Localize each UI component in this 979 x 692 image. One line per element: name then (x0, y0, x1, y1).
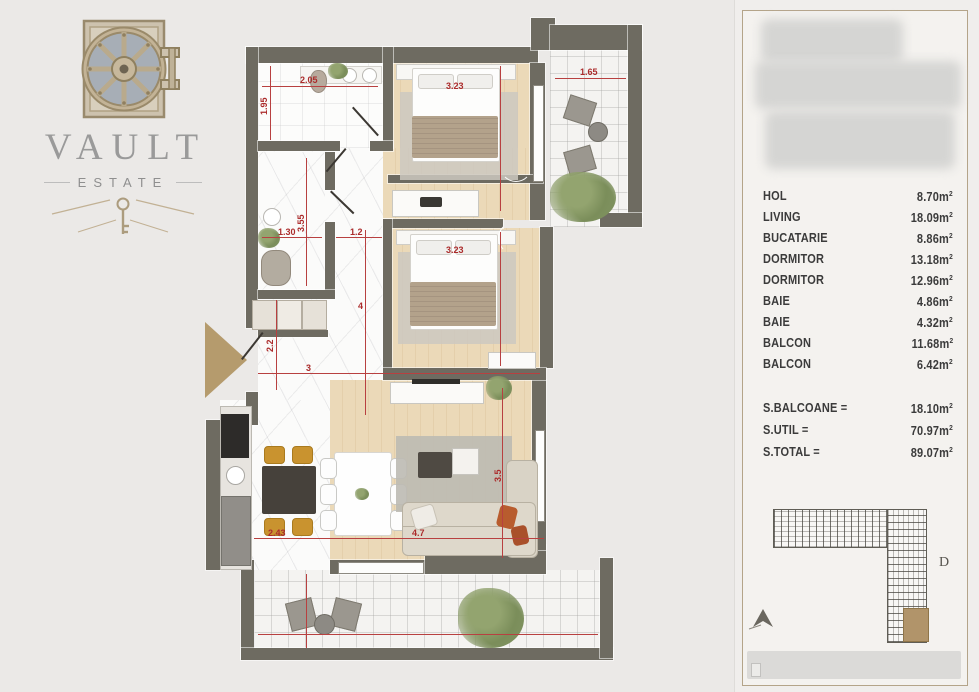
dim-bath2-height: 3.55 (297, 214, 306, 232)
white-chair-1 (320, 458, 337, 479)
keyplan-unit-highlight (903, 608, 929, 642)
wall-bed2-top (383, 219, 503, 228)
wall-kitchen-left (206, 420, 220, 570)
white-chair-2 (320, 484, 337, 505)
room-name: BAIE (763, 315, 790, 330)
wall-bath1-bottom-left (258, 141, 340, 151)
blurred-header-line-1 (761, 19, 903, 63)
coffee-table-white (452, 448, 479, 475)
wall-bath1-bottom-right (370, 141, 393, 151)
balcony2-table (314, 614, 335, 635)
tv-console (390, 382, 484, 404)
bath2-sink (263, 208, 281, 226)
total-row: S.BALCOANE =18.10m2 (763, 401, 953, 416)
room-area: 12.96m2 (911, 273, 953, 288)
room-name: BALCON (763, 336, 811, 351)
dim-bath1-height: 1.95 (260, 97, 269, 115)
room-row: BALCON11.68m2 (763, 336, 953, 351)
room-area: 11.68m2 (911, 336, 953, 351)
room-name: DORMITOR (763, 252, 824, 267)
bed1-blanket (412, 116, 498, 158)
dim-kitchen-width: 2.43 (268, 529, 286, 538)
dim-line (306, 158, 307, 286)
dim-line (555, 78, 626, 79)
dim-balcony1-width: 1.65 (580, 68, 598, 77)
room-area: 8.70m2 (917, 189, 953, 204)
blurred-header-line-2 (755, 61, 961, 109)
bath1-sink2 (362, 68, 377, 83)
dim-line (262, 86, 378, 87)
dim-living-height: 3.5 (494, 469, 503, 482)
dining-chair-2 (292, 446, 313, 464)
bedroom1-window (533, 85, 544, 182)
room-area: 8.86m2 (917, 231, 953, 246)
keyplan-block-label: D (939, 555, 949, 571)
dim-line (500, 66, 501, 211)
dim-line (254, 538, 544, 539)
bath2-plant (258, 228, 280, 248)
info-card: HOL8.70m2 LIVING18.09m2 BUCATARIE8.86m2 … (742, 10, 968, 686)
room-name: DORMITOR (763, 273, 824, 288)
room-area: 4.32m2 (917, 315, 953, 330)
room-row: BUCATARIE8.86m2 (763, 231, 953, 246)
dining-plant (355, 488, 369, 500)
wall-bed2-left (383, 219, 392, 368)
room-name: BUCATARIE (763, 231, 828, 246)
dim-bedroom1-width: 3.23 (446, 82, 464, 91)
kitchen-fridge (221, 496, 251, 566)
wall-balcony2-right (600, 558, 613, 658)
tv (412, 379, 460, 384)
room-area: 6.42m2 (917, 357, 953, 372)
wall-bath2-bottom (258, 290, 335, 299)
dim-bath1-width: 2.05 (300, 76, 318, 85)
dim-hall-height: 4 (358, 302, 363, 311)
wall-bed2-right (540, 227, 553, 368)
footer-mark (751, 663, 761, 677)
total-label: S.BALCOANE = (763, 401, 847, 416)
room-name: HOL (763, 189, 787, 204)
dim-bedroom2-width: 3.23 (446, 246, 464, 255)
dim-living-width: 4.7 (412, 529, 425, 538)
dim-line (500, 232, 501, 366)
dim-line (276, 300, 277, 390)
kitchen-sink (226, 466, 245, 485)
coffee-table-dark (418, 452, 452, 478)
apartment-floorplan: 2.05 1.95 1.65 3.23 3.55 1.30 1.2 4 2.2 … (0, 0, 734, 692)
wall-closet-bottom (258, 330, 328, 337)
dining-chair-1 (264, 446, 285, 464)
dim-corridor-width: 1.2 (350, 228, 363, 237)
room-row: DORMITOR13.18m2 (763, 252, 953, 267)
closet-1 (252, 300, 277, 330)
north-arrow-icon (747, 607, 781, 633)
blurred-footer-bar (747, 651, 961, 679)
room-row: LIVING18.09m2 (763, 210, 953, 225)
room-row: HOL8.70m2 (763, 189, 953, 204)
dim-line (262, 237, 322, 238)
wall-balcony1-right (628, 25, 642, 217)
room-area: 13.18m2 (911, 252, 953, 267)
balcony1-table (588, 122, 608, 142)
entrance-arrow (205, 322, 247, 398)
dim-line (336, 237, 382, 238)
total-label: S.UTIL = (763, 423, 809, 438)
dim-line (258, 373, 540, 374)
room-row: BALCON6.42m2 (763, 357, 953, 372)
dining-chair-4 (292, 518, 313, 536)
room-name: LIVING (763, 210, 801, 225)
bed2-door-arc (498, 222, 530, 254)
room-row: DORMITOR12.96m2 (763, 273, 953, 288)
balcony2-plant (458, 588, 524, 648)
bed1-door-arc (500, 150, 532, 182)
living-balcony-door (338, 562, 424, 574)
wall-balcony1-bottom (600, 213, 642, 227)
dim-hall-left: 2.2 (266, 339, 275, 352)
bed2-console (488, 352, 536, 369)
wall-bath1-bed1 (383, 47, 393, 148)
room-row: BAIE4.32m2 (763, 315, 953, 330)
bath2-tub (261, 250, 291, 286)
wall-bed2-living (383, 368, 546, 380)
blurred-header-line-3 (765, 111, 955, 169)
room-name: BALCON (763, 357, 811, 372)
floorplan-page: VAULT ESTATE (0, 0, 979, 692)
dim-line (270, 66, 271, 140)
corridor-tv (420, 197, 442, 207)
bath1-plant (328, 63, 348, 79)
wall-balcony2-left (241, 560, 254, 658)
kitchen-cooktop (221, 414, 249, 458)
balcony1-plant (550, 172, 616, 222)
total-value: 70.97m2 (911, 423, 953, 438)
room-row: BAIE4.86m2 (763, 294, 953, 309)
total-row: S.UTIL =70.97m2 (763, 423, 953, 438)
total-label: S.TOTAL = (763, 445, 820, 460)
total-value: 89.07m2 (911, 445, 953, 460)
dining-table-dark (262, 466, 316, 514)
dim-bath2-width: 1.30 (278, 228, 296, 237)
wall-balcony2-bottom (241, 648, 613, 660)
white-chair-3 (320, 510, 337, 531)
total-row: S.TOTAL =89.07m2 (763, 445, 953, 460)
room-area: 18.09m2 (911, 210, 953, 225)
closet-2 (277, 300, 302, 330)
room-area: 4.86m2 (917, 294, 953, 309)
closet-3 (302, 300, 327, 330)
dim-line (306, 574, 307, 648)
wall-left-upper (246, 47, 258, 328)
room-name: BAIE (763, 294, 790, 309)
dim-line (258, 634, 598, 635)
living-plant (486, 376, 512, 400)
wall-bath2-right-lower (325, 222, 335, 290)
dim-hall-width: 3 (306, 364, 311, 373)
bed2-blanket (410, 282, 496, 326)
dim-line (365, 230, 366, 415)
total-value: 18.10m2 (911, 401, 953, 416)
